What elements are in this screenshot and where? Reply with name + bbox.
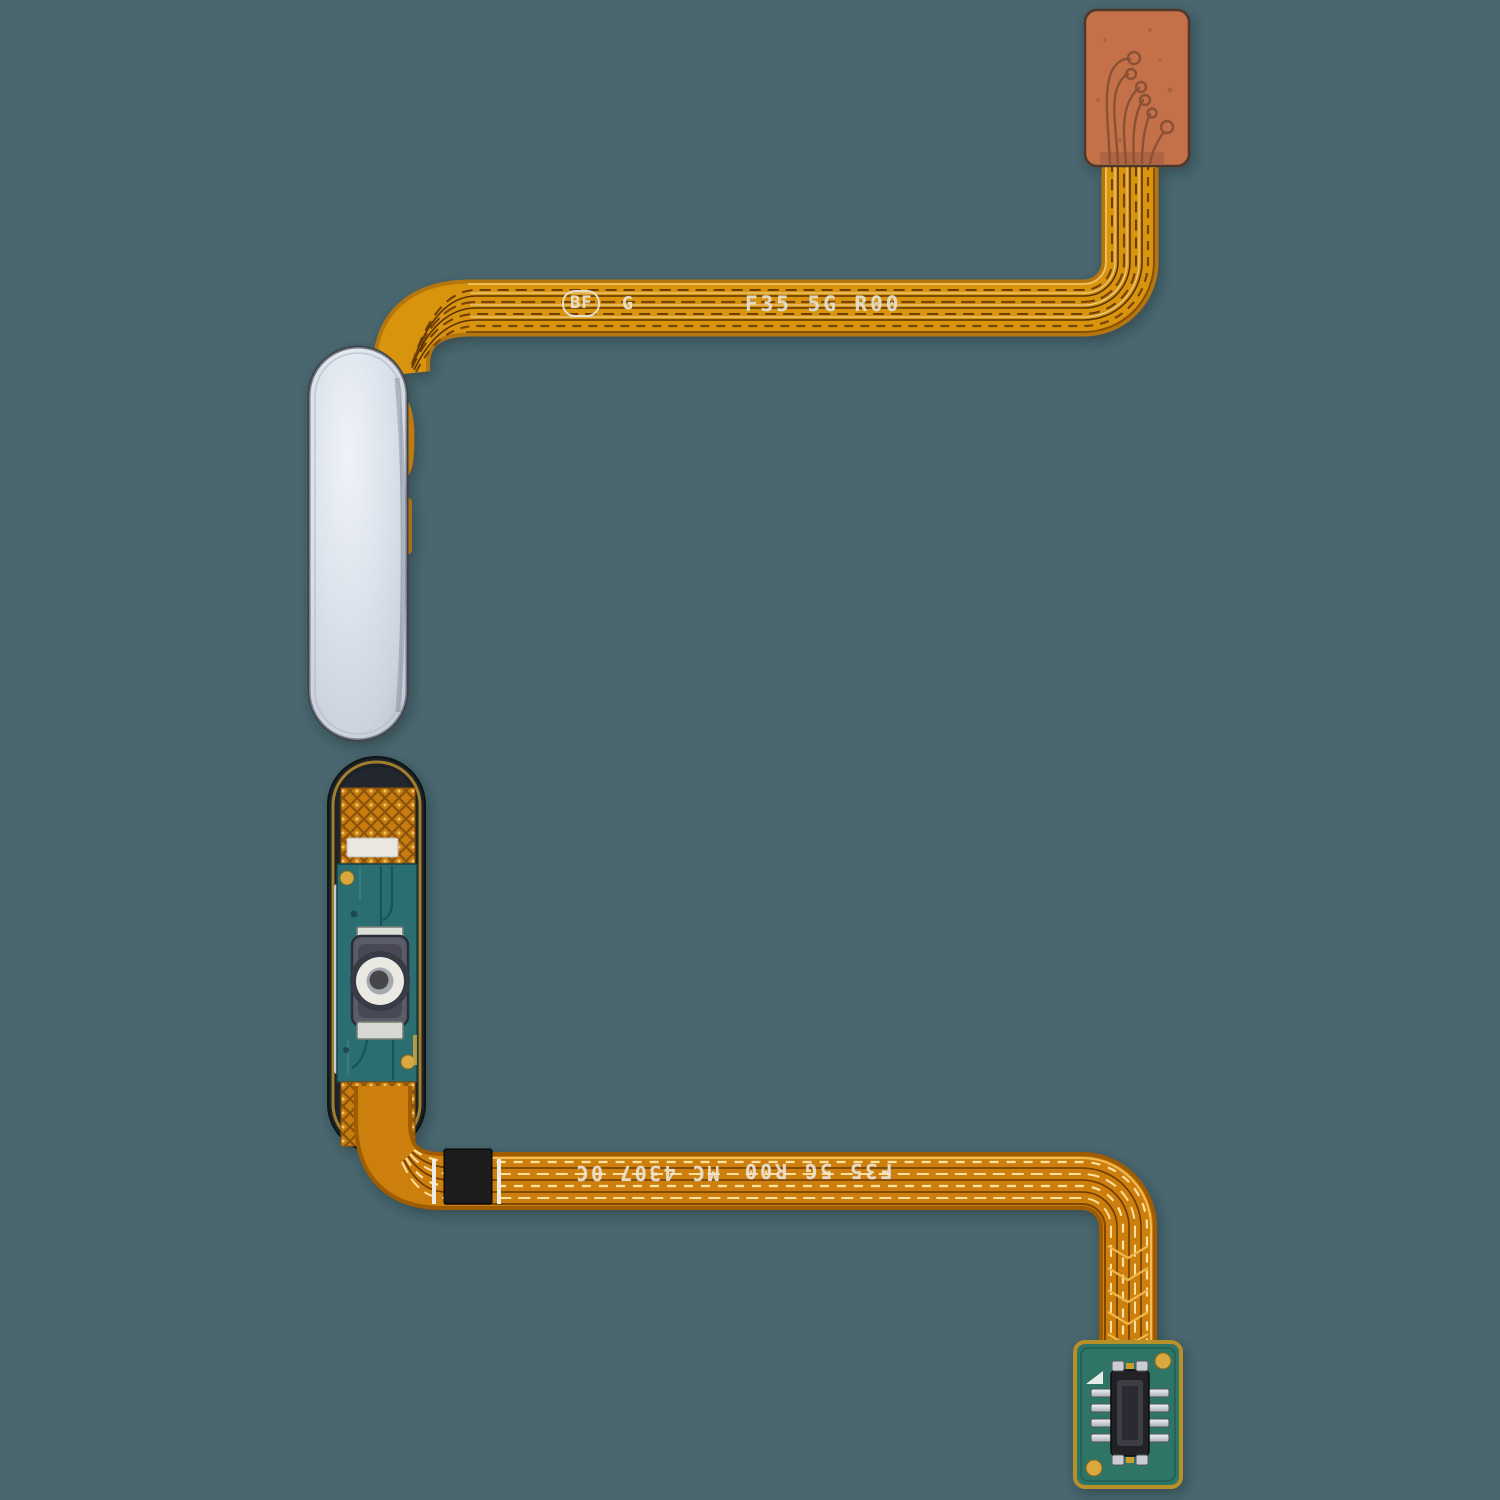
bottom-flex-ribbon — [383, 1086, 1151, 1354]
dome-center — [370, 971, 389, 990]
gold-pad — [340, 871, 354, 885]
cable-marking-grade: G — [622, 293, 633, 314]
white-label — [347, 838, 398, 857]
gold-pad — [1155, 1353, 1171, 1369]
black-patch — [444, 1149, 492, 1204]
board-connector — [1075, 1342, 1181, 1487]
cable-marking-model-top: F35 5G R00 — [745, 292, 901, 316]
fingerprint-button-front — [309, 347, 407, 740]
tick-mark — [497, 1159, 501, 1204]
gold-pad — [1086, 1460, 1102, 1476]
tick-mark — [432, 1159, 436, 1204]
cable-marking-model-bottom: F35 5G R00 — [742, 1159, 892, 1183]
dome-switch — [350, 927, 410, 1039]
top-flex-assembly — [309, 10, 1189, 740]
gold-pad — [401, 1055, 415, 1069]
cable-marking-certification-badge: BF — [562, 290, 600, 317]
product-photo: BF G F35 5G R00 MC 4307 0C F35 5G R00 — [0, 0, 1500, 1500]
top-flex-ribbon — [402, 162, 1154, 374]
bottom-flex-assembly — [328, 757, 1181, 1487]
cable-marking-batch-bottom: MC 4307 0C — [574, 1161, 719, 1185]
sensor-contact-pad — [1085, 10, 1189, 166]
flex-cable-artwork — [0, 0, 1500, 1500]
